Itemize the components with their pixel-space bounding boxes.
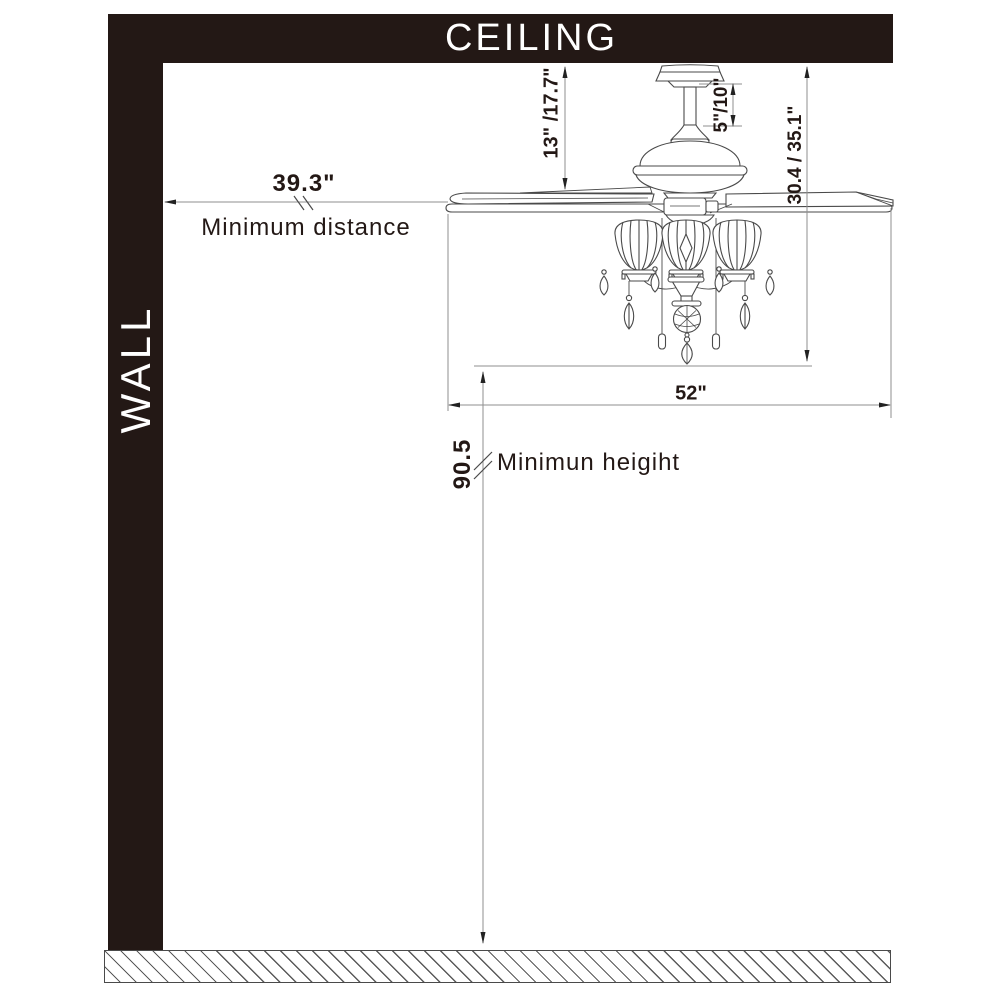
fan-line-drawing <box>0 0 1000 1000</box>
dim-label-ceiling-to-blade: 13" /17.7" <box>541 67 564 158</box>
crystal-drop <box>766 270 774 295</box>
pull-left <box>659 334 666 349</box>
dim-label-downrod: 5"/10" <box>711 78 733 133</box>
lamp-shade-right <box>713 220 761 281</box>
dim-caption-floor-height: Minimun heigiht <box>497 449 680 477</box>
finial-crystal <box>682 333 693 364</box>
dim-caption-wall-distance: Minimum distance <box>201 214 410 242</box>
installation-diagram: CEILING WALL <box>0 0 1000 1000</box>
crystal-drop <box>600 270 608 295</box>
crystal-ball <box>674 306 701 333</box>
lamp-shade-left <box>615 220 663 281</box>
chandelier-light-kit <box>600 218 774 364</box>
dim-label-wall-distance: 39.3" <box>272 170 335 198</box>
pull-right <box>713 334 720 349</box>
dim-label-ceiling-to-bottom: 30.4 / 35.1" <box>785 106 807 205</box>
ceiling-fan <box>446 65 893 364</box>
dim-label-floor-height: 90.5 <box>449 439 477 490</box>
fan-downrod <box>671 87 709 145</box>
crystal-drop <box>740 295 749 329</box>
crystal-drop <box>624 295 633 329</box>
dim-label-blade-sweep: 52" <box>675 383 707 406</box>
